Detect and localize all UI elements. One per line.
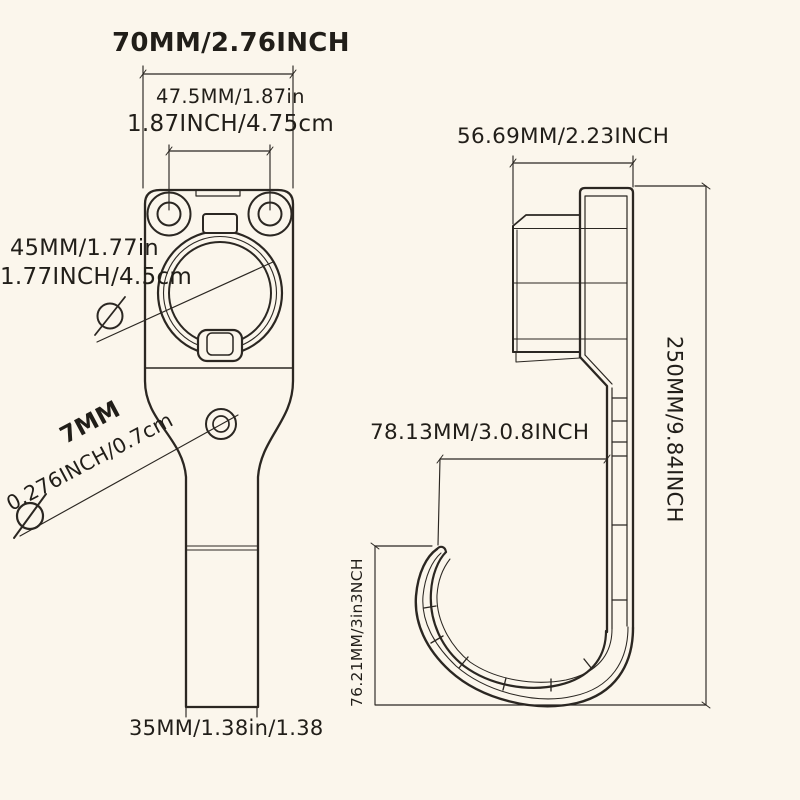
dim-side-top-width-label: 56.69MM/2.23INCH — [457, 125, 669, 148]
side-view-drawing — [416, 188, 633, 706]
dimension-diagram: 70MM/2.76INCH 47.5MM/1.87in 1.87INCH/4.7… — [0, 0, 800, 800]
dim-hole-spacing-label-inch: 1.87INCH/4.75cm — [127, 112, 334, 137]
dim-overall-height-label: 250MM/9.84INCH — [663, 336, 686, 523]
rail-rungs — [612, 398, 627, 600]
dim-hook-height-label: 76.21MM/3in3NCH — [349, 558, 366, 707]
dimension-line-76mm — [375, 546, 706, 705]
dimension-line-56mm — [513, 156, 633, 224]
hook-tip — [437, 547, 446, 552]
holder-body — [513, 215, 627, 362]
diameter-symbol — [95, 297, 125, 335]
hook — [416, 547, 633, 706]
dim-hole-spacing-label-mm: 47.5MM/1.87in — [156, 86, 305, 107]
front-view-dimensions — [14, 66, 296, 717]
spine-rail — [580, 188, 633, 632]
dim-hook-opening-label: 78.13MM/3.0.8INCH — [370, 421, 589, 444]
dim-bottom-width-label: 35MM/1.38in/1.38 — [129, 717, 324, 740]
dim-overall-width-label: 70MM/2.76INCH — [112, 29, 350, 57]
socket-top-tab — [203, 214, 237, 233]
dim-socket-diameter-label-mm: 45MM/1.77in — [10, 236, 159, 260]
socket-key-notch — [198, 330, 242, 361]
strip-joint-line — [187, 546, 257, 550]
dimension-line-47mm — [169, 145, 270, 210]
dim-socket-diameter-label-inch: 1.77INCH/4.5cm — [0, 265, 192, 290]
dimension-line-78mm — [438, 459, 607, 545]
hook-outer-wall — [416, 549, 633, 706]
